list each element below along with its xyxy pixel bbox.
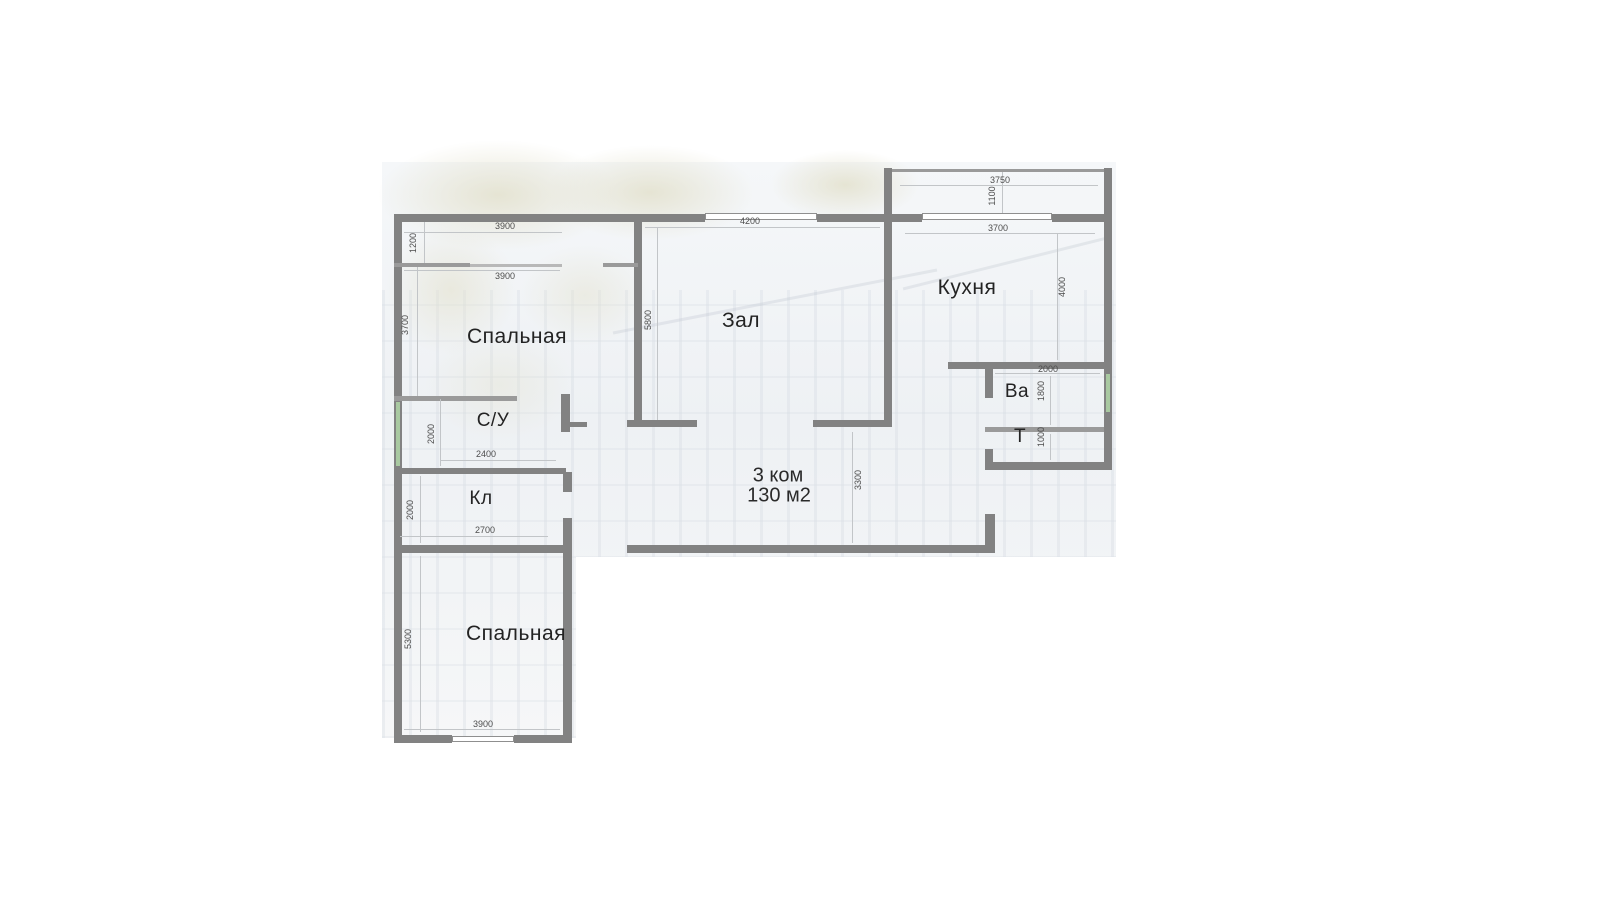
outside-area	[576, 557, 1117, 739]
window-kitchen	[922, 213, 1052, 220]
room-label-toilet: Т	[1014, 426, 1026, 448]
wall-toilet-bottom	[985, 462, 1112, 470]
wall-corridor-top	[813, 420, 892, 427]
dim-corridor-depth: 3300	[853, 470, 863, 490]
dim-line	[404, 232, 562, 233]
foliage-blob	[545, 145, 755, 240]
dim-bedroom-bottom-depth: 5300	[403, 629, 413, 649]
dim-hall-width: 4200	[740, 216, 760, 226]
window-bedroom-bottom	[452, 736, 514, 742]
dim-balcony-width: 3750	[990, 175, 1010, 185]
wall-strip-inner	[603, 263, 638, 267]
dim-line	[417, 267, 418, 396]
dim-line	[424, 222, 425, 263]
wall-kitchen-left	[884, 168, 892, 427]
room-label-bedroom-bottom: Спальная	[466, 622, 566, 646]
dim-top-strip-depth: 1200	[408, 233, 418, 253]
wall-closet-bottom	[394, 545, 564, 553]
dim-closet-depth: 2000	[405, 500, 415, 520]
dim-line	[404, 270, 560, 271]
dim-wc-depth: 2000	[426, 424, 436, 444]
wall-right-outer	[1104, 168, 1112, 470]
dim-toilet-depth: 1000	[1036, 427, 1046, 447]
dim-closet-width: 2700	[475, 525, 495, 535]
wall-left-outer	[394, 214, 402, 743]
room-label-kitchen: Кухня	[938, 276, 997, 300]
window-marker-wc	[396, 402, 400, 466]
dim-line	[1050, 376, 1051, 425]
wall-under-kitchen	[948, 362, 1104, 369]
dim-line	[420, 556, 421, 732]
dim-balcony-depth: 1100	[987, 186, 997, 205]
wall-kitchen-top	[892, 214, 922, 222]
wall-hall-left	[634, 214, 642, 427]
dim-line	[440, 460, 556, 461]
room-label-bedroom-top: Спальная	[467, 325, 567, 349]
wall-balcony-top	[892, 169, 1106, 172]
apartment-area: 130 м2	[747, 485, 811, 508]
dim-wc-width: 2400	[476, 449, 496, 459]
wall-corridor-bottom	[627, 545, 995, 553]
wall-bedroom-wc-divider	[394, 396, 517, 401]
dim-bedroom-top-depth: 3700	[400, 315, 410, 335]
dim-line	[440, 399, 441, 466]
wall-top-outer	[817, 214, 892, 222]
dim-top-strip-width: 3900	[495, 221, 515, 231]
wall-bath-left	[985, 369, 993, 398]
dim-line	[905, 233, 1095, 234]
wall-kitchen-top	[1052, 214, 1104, 222]
wall-top-outer	[394, 214, 642, 222]
dim-bedroom-bottom-width: 3900	[473, 719, 493, 729]
wall-top-outer	[642, 214, 705, 222]
window-marker-bath	[1106, 374, 1110, 412]
wall-bottom-outer	[514, 735, 572, 743]
room-label-bath: Ва	[1005, 381, 1029, 403]
dim-bedroom-top-width: 3900	[495, 271, 515, 281]
wall-closet-right	[563, 472, 572, 492]
window-strip	[470, 264, 562, 267]
room-label-closet: Кл	[469, 488, 492, 510]
dim-line	[400, 536, 548, 537]
dim-hall-depth: 5800	[643, 310, 653, 330]
dim-kitchen-depth: 4000	[1057, 277, 1067, 297]
wall-bottom-outer	[394, 735, 452, 743]
floor-plan-page: Спальная Зал Кухня С/У Кл Ва Т Спальная …	[0, 0, 1600, 900]
dim-bath-width: 2000	[1038, 364, 1058, 374]
room-label-wc: С/У	[477, 410, 510, 432]
dim-line	[645, 227, 880, 228]
wall-strip-inner	[394, 263, 470, 267]
dim-line	[657, 228, 658, 420]
wall-corridor-top	[627, 420, 697, 427]
dim-line	[1050, 434, 1051, 460]
dim-line	[404, 729, 560, 730]
dim-bath-depth: 1800	[1036, 381, 1046, 401]
dim-kitchen-width: 3700	[988, 223, 1008, 233]
foliage-blob	[770, 150, 920, 220]
window-hall	[705, 213, 817, 220]
dim-line	[900, 185, 1098, 186]
wall-wc-bottom	[394, 468, 566, 474]
wall-wc-door-jamb	[561, 422, 587, 427]
dim-line	[420, 476, 421, 543]
wall-closet-right	[563, 518, 572, 548]
room-label-hall: Зал	[722, 309, 760, 333]
